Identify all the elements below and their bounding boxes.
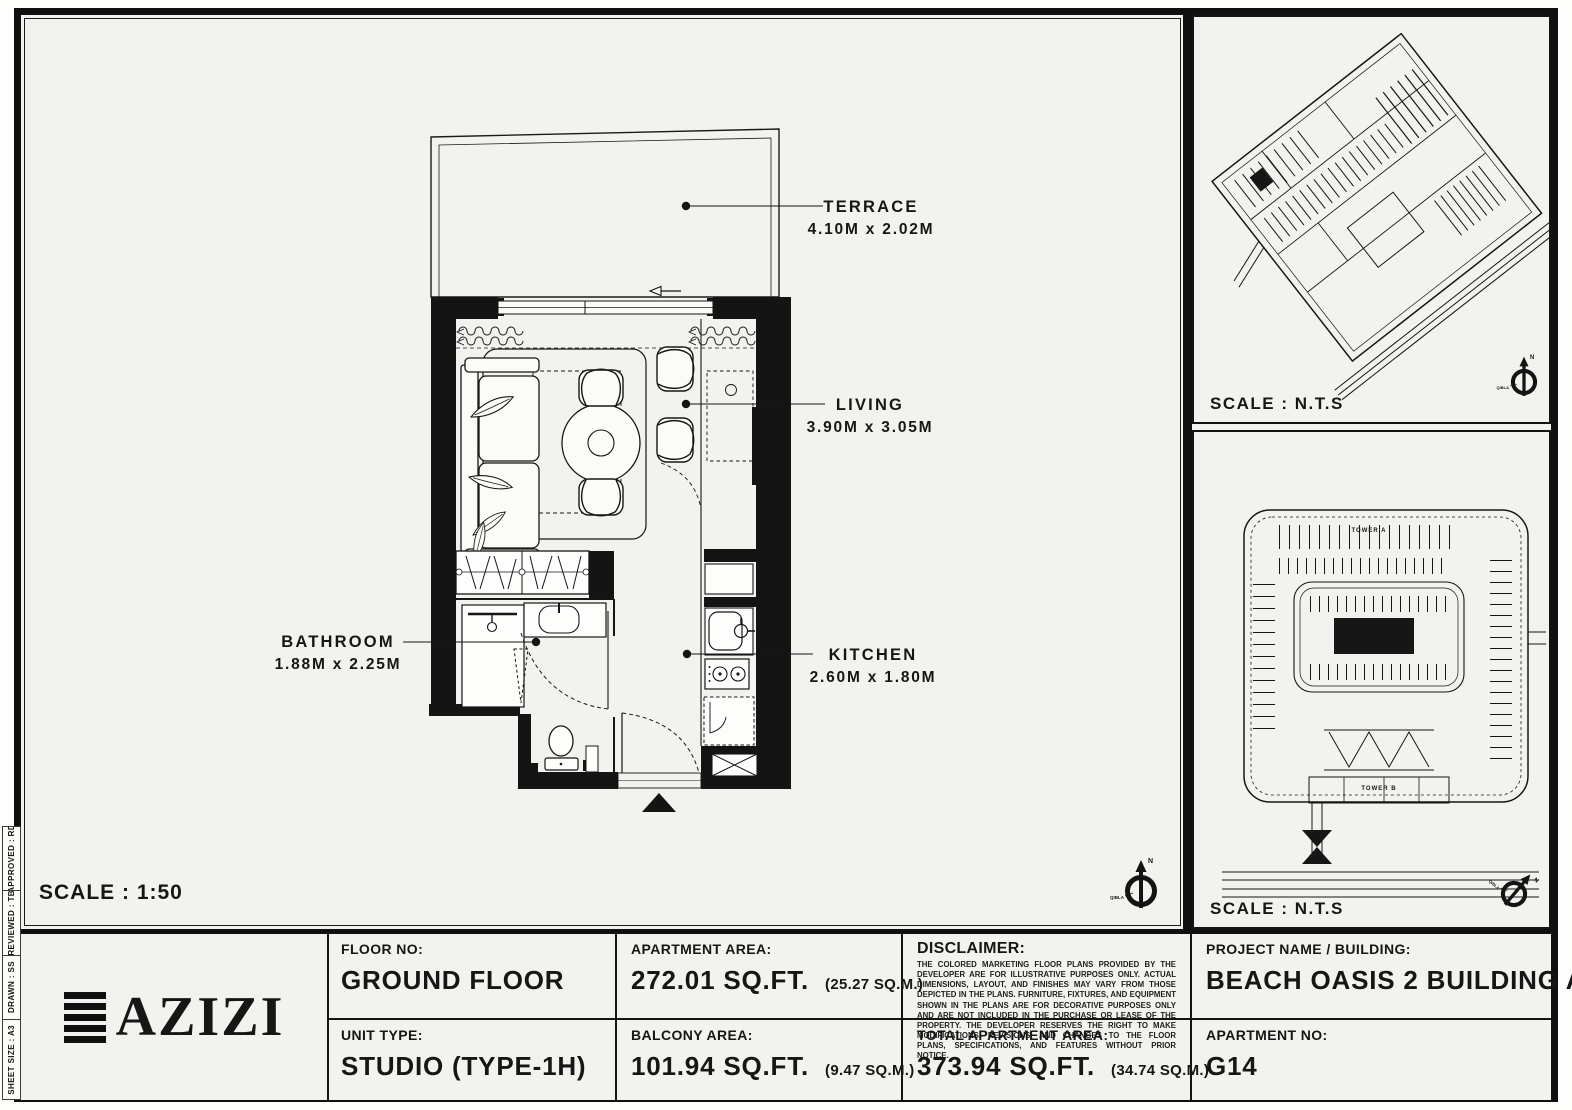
dining-table-icon (562, 404, 640, 482)
floor-plan-drawing-area: TERRACE 4.10M x 2.02M LIVING 3.90M x 3.0… (24, 18, 1181, 926)
bathroom-dims: 1.88M x 2.25M (275, 656, 402, 673)
disclaimer-cell: DISCLAIMER: THE COLORED MARKETING FLOOR … (903, 934, 1192, 1018)
unit-type-cell: UNIT TYPE: STUDIO (TYPE-1H) (327, 1018, 617, 1100)
azizi-logo-bars-icon (64, 992, 106, 1043)
total-area-value: 373.94 SQ.FT. (917, 1051, 1095, 1081)
living-dims: 3.90M x 3.05M (807, 419, 934, 436)
sofa-icon (461, 358, 539, 563)
master-plan-scale-label: SCALE : N.T.S (1210, 899, 1344, 919)
curtain-icon (456, 327, 756, 348)
chair-icon (579, 479, 623, 516)
apartment-no-value: G14 (1206, 1051, 1551, 1082)
floor-plan-svg: TERRACE 4.10M x 2.02M LIVING 3.90M x 3.0… (25, 19, 1180, 925)
plan-scale-label: SCALE : 1:50 (39, 881, 183, 904)
kitchen-dims: 2.60M x 1.80M (810, 669, 937, 686)
north-label: N (1530, 355, 1534, 361)
chair-icon (657, 418, 694, 462)
balcony-area-metric: (9.47 SQ.M.) (825, 1062, 914, 1079)
north-compass-icon: N QIBLA (1484, 856, 1540, 912)
shaft-icon (712, 754, 757, 776)
north-compass-icon: N QIBLA (1110, 858, 1155, 908)
floor-no-value: GROUND FLOOR (341, 965, 615, 996)
balcony-area-label: BALCONY AREA: (631, 1027, 901, 1043)
slide-direction-arrow-icon (650, 287, 681, 296)
floor-plan-sheet: APPROVED : RD REVIEWED : TB DRAWN : SS S… (0, 0, 1572, 1110)
apartment-no-label: APARTMENT NO: (1206, 1027, 1551, 1043)
title-block: AZIZI FLOOR NO: GROUND FLOOR UNIT TYPE: … (21, 929, 1551, 1100)
project-name-cell: PROJECT NAME / BUILDING: BEACH OASIS 2 B… (1192, 934, 1551, 1018)
apartment-no-cell: APARTMENT NO: G14 (1192, 1018, 1551, 1100)
sheet-info-strip: APPROVED : RD REVIEWED : TB DRAWN : SS S… (2, 826, 21, 1100)
approved-by: APPROVED : RD (3, 827, 20, 891)
balcony-area-cell: BALCONY AREA: 101.94 SQ.FT.(9.47 SQ.M.) (617, 1018, 903, 1100)
terrace-dims: 4.10M x 2.02M (808, 221, 935, 238)
floor-no-label: FLOOR NO: (341, 941, 615, 957)
terrace-outline (431, 129, 779, 297)
sheet-size: SHEET SIZE : A3 (3, 1020, 20, 1099)
azizi-logo: AZIZI (64, 989, 285, 1045)
wardrobe-icon (456, 551, 589, 594)
living-room-furniture (461, 347, 701, 563)
unit-type-value: STUDIO (TYPE-1H) (341, 1051, 615, 1082)
total-area-label: TOTAL APARTMENT AREA: (917, 1027, 1190, 1043)
balcony-area-value: 101.94 SQ.FT. (631, 1051, 809, 1081)
kitchen-fixtures (701, 319, 757, 776)
disclaimer-label: DISCLAIMER: (917, 940, 1190, 958)
north-label: N (1148, 858, 1153, 865)
bathroom-sink-icon (524, 603, 606, 637)
kitchen-label: KITCHEN (829, 646, 918, 664)
apartment-area-value: 272.01 SQ.FT. (631, 965, 809, 995)
kitchen-sink-icon (705, 608, 755, 655)
appliance-icon (704, 697, 754, 745)
terrace-label: TERRACE (823, 198, 918, 216)
master-plan-inset: TOWER A TOWER B N QIBLA SCALE : N.T.S (1192, 430, 1551, 929)
apartment-area-label: APARTMENT AREA: (631, 941, 901, 957)
drawn-by: DRAWN : SS (3, 956, 20, 1020)
project-name-value: BEACH OASIS 2 BUILDING A (1206, 965, 1551, 996)
reviewed-by: REVIEWED : TB (3, 891, 20, 955)
north-label: N (1532, 877, 1539, 884)
azizi-logo-text: AZIZI (116, 989, 285, 1045)
sliding-door (498, 301, 713, 314)
floor-no-cell: FLOOR NO: GROUND FLOOR (327, 934, 617, 1018)
tower-b-label: TOWER B (1361, 786, 1396, 792)
entry-arrow-icon (642, 793, 676, 812)
chair-icon (579, 369, 623, 406)
qibla-label: QIBLA (1497, 385, 1510, 390)
project-name-label: PROJECT NAME / BUILDING: (1206, 941, 1551, 957)
total-area-cell: TOTAL APARTMENT AREA: 373.94 SQ.FT.(34.7… (903, 1018, 1192, 1100)
unit-type-label: UNIT TYPE: (341, 1027, 615, 1043)
chair-icon (657, 347, 694, 391)
entrance (618, 713, 701, 812)
entry-door-swing (622, 713, 699, 773)
tower-a-label: TOWER A (1352, 528, 1387, 534)
stove-icon (705, 659, 749, 689)
toilet-icon (530, 726, 588, 772)
location-map-inset: N QIBLA SCALE : N.T.S (1192, 15, 1551, 424)
bathroom-label: BATHROOM (281, 633, 395, 651)
north-compass-icon: N QIBLA (1497, 355, 1536, 396)
qibla-label: QIBLA (1110, 895, 1125, 900)
master-plan-svg: TOWER A TOWER B N QIBLA (1194, 432, 1549, 927)
living-label: LIVING (836, 396, 904, 414)
bathroom-fixtures (456, 599, 614, 772)
location-map-scale-label: SCALE : N.T.S (1210, 394, 1344, 414)
apartment-area-cell: APARTMENT AREA: 272.01 SQ.FT.(25.27 SQ.M… (617, 934, 903, 1018)
developer-logo-cell: AZIZI (21, 934, 329, 1100)
location-map-svg: N QIBLA (1194, 17, 1549, 422)
